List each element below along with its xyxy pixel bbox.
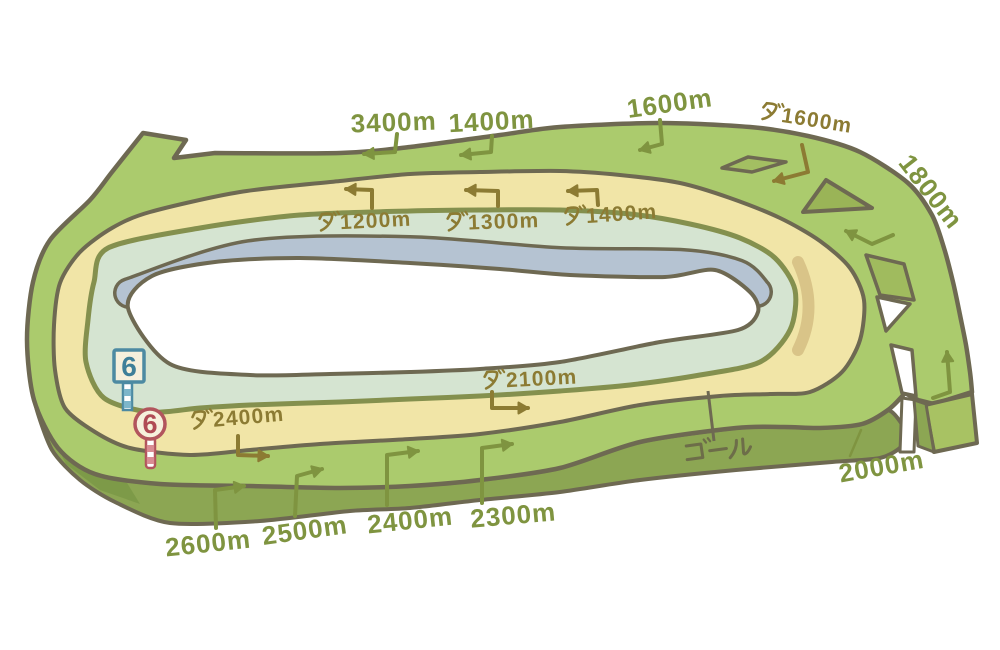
svg-text:3400m: 3400m bbox=[350, 106, 437, 139]
svg-text:1600m: 1600m bbox=[625, 82, 714, 124]
svg-text:6: 6 bbox=[121, 351, 137, 382]
svg-text:6: 6 bbox=[142, 409, 157, 439]
svg-text:2100m: 2100m bbox=[505, 366, 577, 393]
svg-text:2300m: 2300m bbox=[469, 496, 557, 533]
svg-text:1400m: 1400m bbox=[448, 104, 535, 138]
svg-text:1200m: 1200m bbox=[339, 208, 411, 235]
svg-text:1300m: 1300m bbox=[468, 209, 540, 234]
svg-text:2600m: 2600m bbox=[164, 524, 253, 563]
